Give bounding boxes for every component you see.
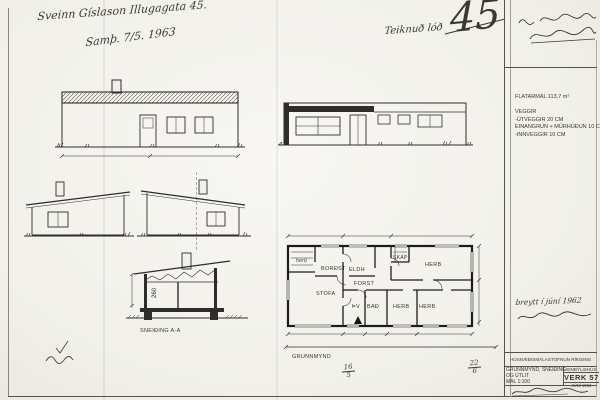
spec-area: FLATARMÁL 113,7 m² (515, 95, 597, 101)
sheet-border-right (596, 40, 597, 397)
room-label-wardrobe: SKÁP (393, 255, 408, 261)
title-block-contents-cell: GRUNNMYND, SNEIÐING OG ÚTLIT MÁL 1:100 (504, 367, 564, 385)
section-drawing: 260 (126, 250, 248, 334)
rear-elevation-drawing (278, 93, 473, 155)
fold-mark (276, 0, 278, 400)
signature-scribble (516, 12, 598, 50)
room-label-bedroom-top: HERB (425, 262, 441, 268)
signature-scribble (515, 309, 595, 325)
fascia-band (289, 106, 374, 112)
spec-wall-line: -ÚTVEGGIR 20 CM (515, 118, 597, 124)
room-label-living: STOFA (316, 291, 335, 297)
approval-date-note: Samþ. 7/5. 1963 (85, 25, 176, 49)
front-elevation-drawing (55, 76, 245, 164)
spec-block: FLATARMÁL 113,7 m² VEGGIR -ÚTVEGGIR 20 C… (515, 95, 597, 139)
building-type: EINBÝLISHÚS (564, 367, 599, 372)
section-caption: SNEIÐING A-A (140, 328, 181, 334)
spec-walls-heading: VEGGIR (515, 110, 597, 116)
title-block-work-cell: EINBÝLISHÚS VERK 57 JÚNÍ 1962 (564, 367, 599, 385)
door (140, 115, 156, 147)
owner-address-note: Sveinn Gíslason Illugagata 45. (37, 0, 207, 23)
signature-scribble (508, 386, 593, 398)
room-label-bath: BAÐ (367, 304, 379, 310)
corner-board (284, 103, 289, 145)
room-label-dining: BORÐST (321, 266, 346, 272)
room-label-bedroom-1: HERB (393, 304, 409, 310)
room-label-closet: herb (296, 258, 307, 264)
wall-right (214, 268, 217, 308)
chimney (56, 182, 64, 196)
room-label-bedroom-2: HERB (419, 304, 435, 310)
revision-note: breytt í júní 1962 (515, 296, 582, 307)
date-fraction-left: 16 5 (341, 364, 355, 380)
drawing-sheet: Sveinn Gíslason Illugagata 45. Samþ. 7/5… (0, 0, 600, 400)
drawing-scale: MÁL 1:100 (506, 380, 561, 386)
title-block-agency: HÚSNÆÐISMÁLASTOFNUN RÍKISINS (504, 353, 597, 367)
interior-walls (288, 246, 472, 326)
title-block: HÚSNÆÐISMÁLASTOFNUN RÍKISINS GRUNNMYND, … (504, 352, 597, 398)
chimney (112, 80, 121, 93)
fascia-band (62, 92, 238, 103)
title-block-body: GRUNNMYND, SNEIÐING OG ÚTLIT MÁL 1:100 E… (504, 367, 597, 386)
floor-slab (140, 308, 224, 312)
window (398, 115, 410, 124)
work-number: VERK 57 (564, 372, 599, 383)
room-label-hall: FORST (354, 281, 374, 287)
date-fraction-right: 22 6 (467, 360, 481, 376)
spec-wall-line: -INNVEGGIR 10 CM (515, 133, 597, 139)
spec-wall-line: EINANGRUN + MÚRHÚÐUN 10 CM (515, 125, 597, 131)
chimney (199, 180, 207, 194)
pencil-scribble (44, 336, 104, 366)
window (378, 115, 390, 124)
side-elevation-right-drawing (137, 178, 251, 242)
footing (144, 312, 152, 320)
column-divider (504, 0, 505, 397)
ceiling-height-dim: 260 (152, 287, 158, 298)
side-elevation-left-drawing (24, 178, 134, 242)
footing (210, 312, 218, 320)
wall-left (144, 274, 147, 308)
plan-caption: GRUNNMYND (292, 354, 331, 360)
plot-note: Teiknuð lóð (384, 22, 443, 37)
column-top-rule (504, 67, 597, 68)
column-divider-inner (510, 0, 511, 397)
sheet-border-left (8, 8, 9, 397)
room-label-kitchen: ELDH (349, 267, 365, 273)
room-label-laundry: ÞV (352, 304, 360, 310)
entrance-marker (354, 316, 362, 324)
